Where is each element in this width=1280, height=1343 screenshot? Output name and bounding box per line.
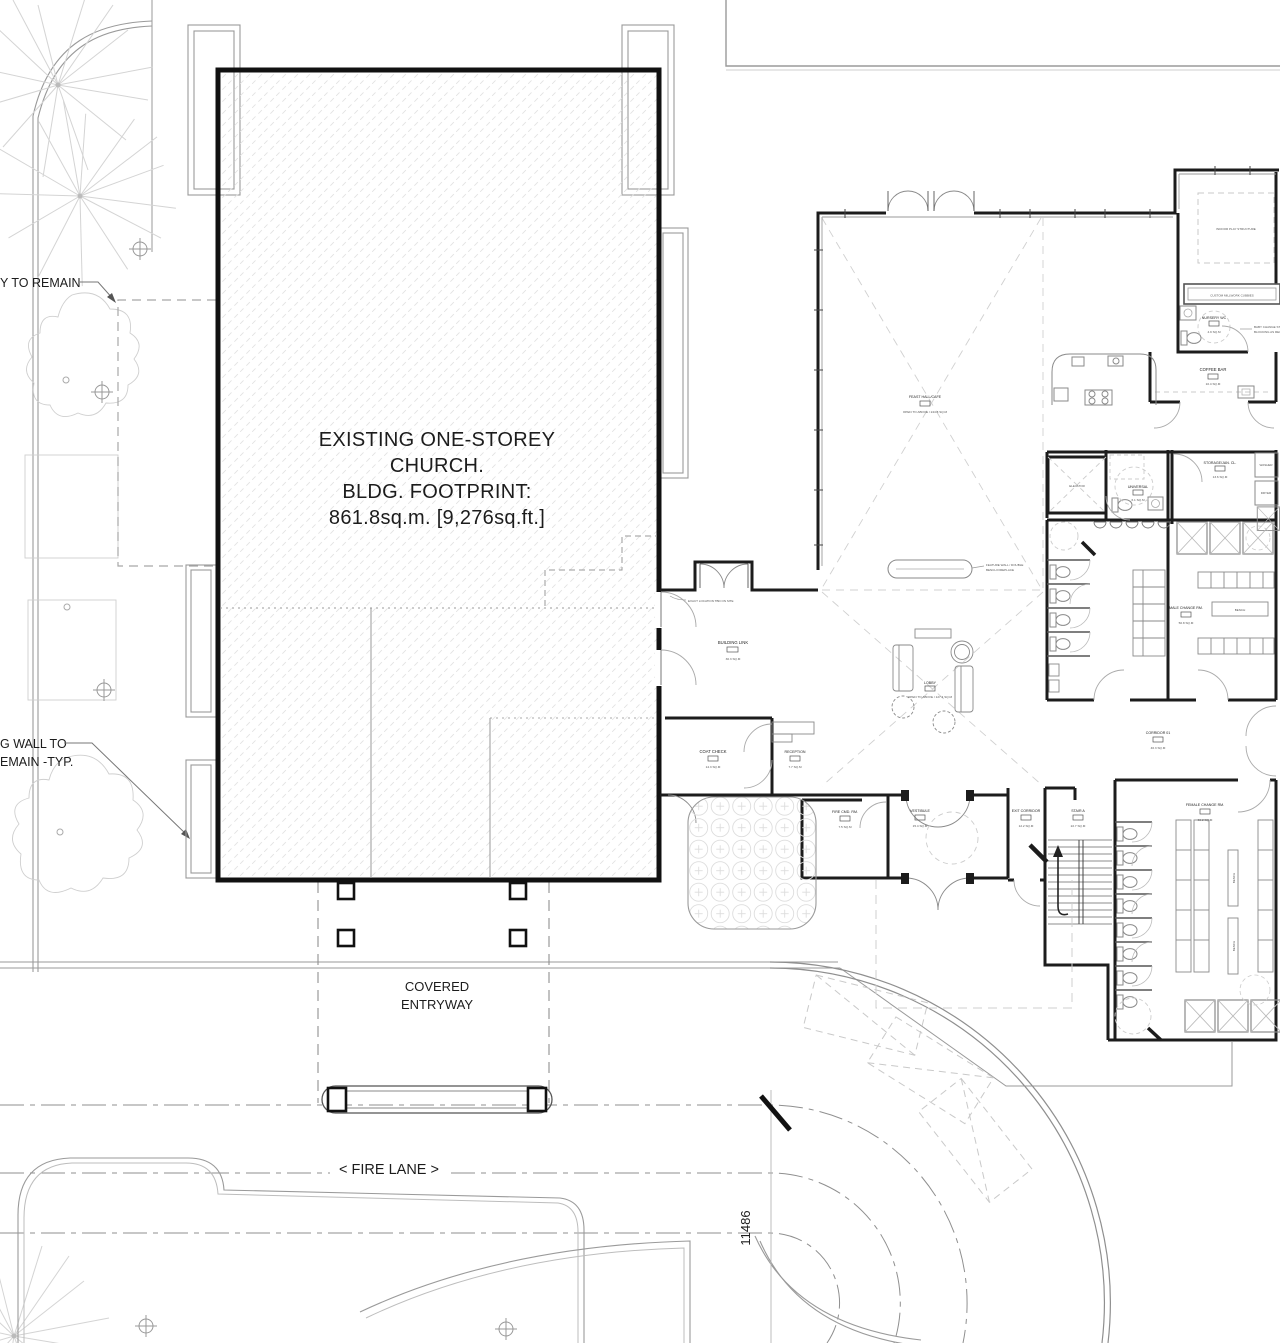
survey-marker-icon (91, 381, 113, 403)
stair-a-label: STAIR A (1071, 809, 1085, 813)
floor-plan-drawing: Y TO REMAIN G WALL TO EMAIN -TYP. 11486 … (0, 0, 1280, 1343)
locker-bank (1198, 572, 1274, 654)
lobby-label: LOBBY (924, 681, 937, 685)
reception-area: 7.7 SQ.M (788, 765, 801, 769)
survey-marker-icon (129, 238, 151, 260)
room-female-change: BENCH BENCH FEMALE CHANGE RM. 66.2 SQ.M (1115, 780, 1280, 1040)
door-arc (1248, 402, 1274, 428)
reception-desk (772, 722, 814, 734)
stair-up-arrow (1058, 854, 1068, 915)
toilet-icon (1117, 875, 1137, 889)
washer-label: WASHER (1259, 463, 1273, 467)
fire-cmd-label: FIRE CMD. RM. (832, 810, 858, 814)
universal-area: 6.1 SQ.M (1131, 498, 1144, 502)
curb-island (360, 1241, 690, 1343)
vestibule-label: VESTIBULE (910, 809, 930, 813)
door-arc (744, 724, 772, 752)
coat-check-label: COAT CHECK (699, 749, 726, 754)
door-arc (1198, 670, 1228, 700)
canopy-outline (118, 300, 216, 566)
fire-lane-centerline (0, 1233, 840, 1343)
room-tag (1133, 490, 1143, 495)
baby-change-note-2: BLOCKING AS REQ. -TYP. (1254, 330, 1280, 334)
leader-line (64, 743, 188, 836)
corridor-01: CORRIDOR 01 46.3 SQ.M (1146, 706, 1276, 776)
church-label-line3: BLDG. FOOTPRINT: (342, 481, 531, 503)
room-tag (1021, 815, 1031, 820)
survey-marker-icon (495, 1318, 517, 1340)
feast-hall-doors (888, 191, 974, 211)
toilet-icon (1112, 498, 1132, 512)
fire-cmd-area: 7.5 SQ.M (838, 825, 851, 829)
stair-a: STAIR A 22.7 SQ.M (1048, 809, 1112, 924)
toilet-icon (1050, 589, 1070, 603)
room-coffee-bar: COFFEE BAR 10.4 SQ.M (1154, 367, 1274, 428)
curb-island (18, 1158, 584, 1343)
planting-bed (28, 600, 116, 700)
bench-label: BENCH (1232, 941, 1236, 952)
storage-label: STORAGE/JAN. CL. (1204, 461, 1237, 465)
curb-left (38, 26, 152, 972)
floor-plan-sheet: Y TO REMAIN G WALL TO EMAIN -TYP. 11486 … (0, 0, 1280, 1343)
room-tag (1153, 737, 1163, 742)
room-tag (1209, 321, 1219, 326)
entry-bench (322, 1086, 552, 1113)
day-lockers (1133, 570, 1165, 656)
feature-wall-note-1: FEATURE WALL / DOUBLE (986, 563, 1023, 567)
stair-a-area: 22.7 SQ.M (1071, 824, 1086, 828)
door-arc (1246, 746, 1276, 776)
coffee-bar-area: 10.4 SQ.M (1206, 382, 1221, 386)
coffee-bar-label: COFFEE BAR (1200, 367, 1227, 372)
elevator-label: ELEVATOR (1069, 484, 1085, 488)
male-change-area: 50.8 SQ.M (1179, 621, 1194, 625)
door-arc (744, 760, 772, 788)
room-tag (727, 647, 738, 652)
mullion-ticks (814, 166, 1250, 545)
universal-label: UNIVERSAL (1128, 485, 1148, 489)
baby-change-note-1: BABY CHANGE STATION, PROVIDE (1254, 325, 1280, 329)
toilet-icon (1117, 923, 1137, 937)
corridor01-label: CORRIDOR 01 (1146, 731, 1171, 735)
building-link-area: 30.3 SQ.M (726, 657, 741, 661)
lobby: FEATURE WALL / DOUBLE BENCH FIREPLACE LO… (888, 560, 1023, 733)
toilet-icon (1117, 827, 1137, 841)
door-arc (1246, 706, 1276, 736)
shower-icon (1243, 522, 1273, 554)
survey-marker-icon (93, 679, 115, 701)
nursery-area: 4.9 SQ.M (1207, 330, 1220, 334)
coat-check-area: 14.3 SQ.M (706, 765, 721, 769)
room-tag (1181, 612, 1191, 617)
open-to-above-lines (822, 218, 1043, 786)
door-jambs (901, 790, 974, 884)
door-arc (1174, 454, 1202, 482)
room-nursery-wc: NURSERY WC 4.9 SQ.M BABY CHANGE STATION,… (1180, 306, 1280, 352)
room-male-change: BENCH MALE CHANGE RM. 50.8 SQ.M (1169, 522, 1274, 700)
room-tag (708, 756, 718, 761)
room-tag (1215, 466, 1225, 471)
door-arc (1094, 670, 1124, 700)
indoor-play-label: INDOOR PLAY STRUCTURE (1216, 227, 1256, 231)
toilet-icon (1050, 637, 1070, 651)
basin (1180, 306, 1196, 320)
servery-counter (1052, 354, 1156, 405)
room-vestibule: VESTIBULE 15.4 SQ.M (901, 790, 978, 910)
door-arc (860, 802, 886, 828)
room-universal: UNIVERSAL 6.1 SQ.M (1106, 455, 1163, 520)
walkway-edge (840, 968, 1232, 1086)
dimension-tick (761, 1096, 790, 1130)
entry-columns (338, 883, 526, 946)
toilet-icon (1050, 565, 1070, 579)
exit-corridor-label: EXIT CORRIDOR (1012, 809, 1041, 813)
female-change-area: 66.2 SQ.M (1198, 818, 1213, 822)
locker-banks (1176, 820, 1273, 972)
door-arc (1238, 780, 1270, 812)
door-arc (1014, 880, 1040, 906)
church-label-line4: 861.8sq.m. [9,276sq.ft.] (329, 507, 545, 529)
bench-label: BENCH (1232, 873, 1236, 884)
shower-icon (1185, 1000, 1215, 1032)
room-tag (790, 756, 800, 761)
exit-corridor-area: 12.2 SQ.M (1019, 824, 1034, 828)
shower-icon (1177, 522, 1207, 554)
toilet-icon (1181, 331, 1201, 345)
nursery-label: NURSERY WC (1202, 316, 1227, 320)
feature-wall-note-2: BENCH FIREPLACE (986, 568, 1014, 572)
dimension-text: 11486 (738, 1210, 753, 1245)
room-tag (920, 401, 930, 406)
female-change-label: FEMALE CHANGE RM. (1186, 803, 1224, 807)
toilet-icon (1050, 613, 1070, 627)
canopy-note: Y TO REMAIN (0, 276, 81, 290)
storage-area: 13.6 SQ.M (1213, 475, 1228, 479)
reception-label: RECEPTION (785, 750, 806, 754)
roads-layer: 11486 < FIRE LANE > (0, 962, 1232, 1343)
exact-location-note: EXACT LOCATION TBD ON SITE (688, 599, 734, 603)
church-building: EXISTING ONE-STOREY CHURCH. BLDG. FOOTPR… (186, 25, 696, 880)
vestibule-area: 15.4 SQ.M (913, 824, 928, 828)
dryer-label: DRYER (1261, 491, 1272, 495)
cubbies-label: CUSTOM MILLWORK CUBBIES (1210, 294, 1254, 298)
feast-hall-label: FEAST HALL/CAFE (909, 395, 942, 399)
covered-entryway: COVERED ENTRYWAY (318, 882, 552, 1113)
survey-marker-icon (135, 1315, 157, 1337)
bench-label: BENCH (1235, 608, 1246, 612)
property-line (726, 0, 1280, 66)
church-label-line1: EXISTING ONE-STOREY (319, 429, 555, 451)
toilet-icon (1117, 971, 1137, 985)
toilet-icon (1117, 995, 1137, 1009)
lobby-sub: OPEN TO ABOVE / 127.4 SQ.M (908, 695, 953, 699)
washroom-corridor (1047, 522, 1170, 700)
building-link: BUILDING LINK 30.3 SQ.M EXACT LOCATION T… (668, 564, 748, 823)
feast-hall: FEAST HALL/CAFE OPEN TO ABOVE / 244.8 SQ… (903, 395, 948, 414)
sink-row (1094, 522, 1170, 528)
fire-lane-centerline (0, 1105, 967, 1343)
shower-icon (1218, 1000, 1248, 1032)
dashed-parking-stalls (803, 975, 1032, 1202)
tree-canopy (26, 293, 139, 417)
wall-note-line1: G WALL TO (0, 737, 67, 751)
elevator: ELEVATOR (1048, 457, 1106, 513)
covered-entry-label-2: ENTRYWAY (401, 997, 473, 1012)
dropoff-outline (876, 880, 1072, 1008)
room-tag (1073, 815, 1083, 820)
corridor01-area: 46.3 SQ.M (1151, 746, 1166, 750)
room-fire-cmd: FIRE CMD. RM. 7.5 SQ.M (832, 802, 886, 829)
wall-note-line2: EMAIN -TYP. (0, 755, 73, 769)
fire-lane-label: < FIRE LANE > (339, 1162, 439, 1178)
room-tag (840, 816, 850, 821)
room-tag (1200, 809, 1210, 814)
room-coat-check: COAT CHECK 14.3 SQ.M (699, 724, 772, 788)
room-exit-corridor: EXIT CORRIDOR 12.2 SQ.M (1012, 809, 1047, 906)
fire-lane-centerline (0, 1173, 900, 1343)
door-arc (1222, 326, 1248, 352)
building-link-label: BUILDING LINK (718, 640, 748, 645)
feast-hall-sub: OPEN TO ABOVE / 244.8 SQ.M (903, 410, 948, 414)
stall-doors (1070, 560, 1090, 652)
paver-pad (688, 797, 816, 929)
door-arc (1154, 402, 1180, 428)
curb-curve-outer (770, 962, 1110, 1343)
tree-canopy (12, 755, 143, 892)
planting-bed (25, 455, 118, 558)
tree-burst-icon (0, 1246, 109, 1343)
shower-icon (1210, 522, 1240, 554)
church-label-line2: CHURCH. (390, 455, 484, 477)
room-reception: RECEPTION 7.7 SQ.M (772, 722, 814, 769)
addition-building: INDOOR PLAY STRUCTURE CUSTOM MILLWORK CU… (660, 166, 1280, 1040)
male-change-label: MALE CHANGE RM. (1169, 606, 1203, 610)
tree-burst-icon (0, 0, 153, 177)
covered-entry-label-1: COVERED (405, 979, 469, 994)
room-tag (1208, 374, 1218, 379)
